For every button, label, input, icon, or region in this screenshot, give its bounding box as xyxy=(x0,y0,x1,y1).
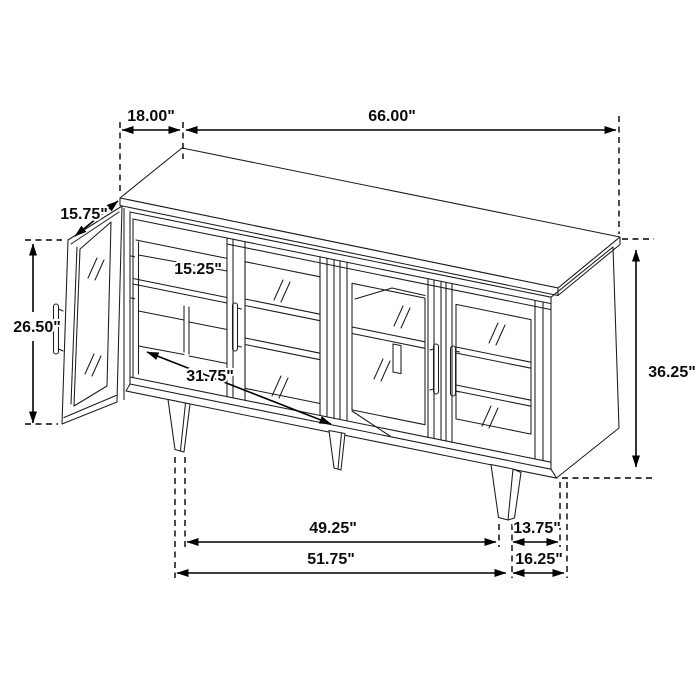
dim-label-interior-width: 31.75" xyxy=(186,368,234,385)
glass-reflection-icon xyxy=(272,280,290,398)
cabinet-line-art xyxy=(54,148,621,520)
dimension-leg-span-inner: 49.25" xyxy=(187,520,496,542)
open-bay-interior xyxy=(131,219,227,378)
dim-label-leg-to-corner-upper: 13.75" xyxy=(513,520,561,537)
dim-label-overall-height: 36.25" xyxy=(648,364,696,381)
dimension-top-depth: 18.00" xyxy=(122,108,180,130)
front-right-leg xyxy=(491,465,521,521)
dimension-leg-span-outer: 51.75" xyxy=(177,551,506,573)
glass-reflection-icon xyxy=(482,323,505,428)
dim-label-door-height: 26.50" xyxy=(13,319,61,336)
dimension-shelf-depth: 15.25" xyxy=(174,261,222,278)
dim-label-leg-span-outer: 51.75" xyxy=(307,551,355,568)
open-door xyxy=(54,206,123,424)
dimension-overall-height: 36.25" xyxy=(636,250,696,467)
dimension-overall-width: 66.00" xyxy=(186,108,616,130)
dim-label-overall-width: 66.00" xyxy=(368,108,416,125)
glass-reflection-icon xyxy=(374,306,410,381)
dimension-leg-to-corner-lower: 16.25" xyxy=(513,551,564,573)
diagram-canvas: 18.00" 66.00" 15.75" 26.50" 15.25" 31.75… xyxy=(0,0,700,700)
dim-label-leg-to-corner-lower: 16.25" xyxy=(515,551,563,568)
front-left-leg xyxy=(168,400,190,453)
dim-label-leg-span-inner: 49.25" xyxy=(309,520,357,537)
dim-label-shelf-depth: 15.25" xyxy=(174,261,222,278)
glass-door-3 xyxy=(352,283,439,436)
glass-door-4 xyxy=(451,304,532,434)
glass-door-2 xyxy=(233,262,321,404)
door-2-handle xyxy=(233,303,242,351)
dimension-leg-to-corner-upper: 13.75" xyxy=(513,520,561,542)
dimension-door-height: 26.50" xyxy=(13,244,61,423)
dim-label-door-width: 15.75" xyxy=(60,206,108,223)
dim-label-top-depth: 18.00" xyxy=(127,108,175,125)
middle-leg xyxy=(329,431,345,471)
